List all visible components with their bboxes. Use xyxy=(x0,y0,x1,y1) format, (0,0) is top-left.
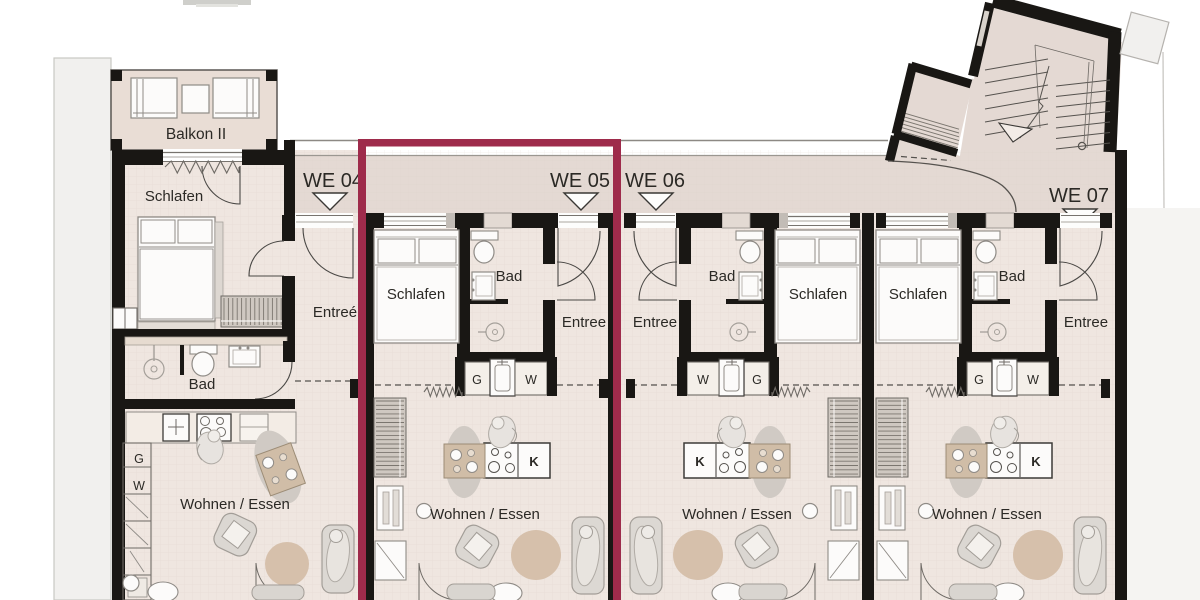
svg-text:K: K xyxy=(1031,454,1041,469)
svg-text:Wohnen / Essen: Wohnen / Essen xyxy=(430,506,540,523)
svg-text:Entree: Entree xyxy=(633,314,677,331)
svg-text:Schlafen: Schlafen xyxy=(145,188,203,205)
svg-text:W: W xyxy=(697,373,709,387)
svg-text:Entree: Entree xyxy=(562,314,606,331)
svg-text:Wohnen / Essen: Wohnen / Essen xyxy=(682,506,792,523)
svg-text:K: K xyxy=(695,454,705,469)
svg-text:W: W xyxy=(133,479,145,493)
svg-text:Entreé: Entreé xyxy=(313,304,357,321)
svg-text:WE 04: WE 04 xyxy=(303,170,363,192)
svg-text:Schlafen: Schlafen xyxy=(789,286,847,303)
svg-text:Wohnen / Essen: Wohnen / Essen xyxy=(180,496,290,513)
svg-text:Bad: Bad xyxy=(709,268,736,285)
svg-text:G: G xyxy=(134,452,144,466)
svg-text:Balkon II: Balkon II xyxy=(166,126,226,143)
svg-text:WE 05: WE 05 xyxy=(550,170,610,192)
svg-text:W: W xyxy=(525,373,537,387)
svg-text:G: G xyxy=(472,373,482,387)
svg-text:Wohnen / Essen: Wohnen / Essen xyxy=(932,506,1042,523)
svg-text:WE 07: WE 07 xyxy=(1049,185,1109,207)
svg-text:Bad: Bad xyxy=(999,268,1026,285)
svg-text:Schlafen: Schlafen xyxy=(889,286,947,303)
svg-text:K: K xyxy=(529,454,539,469)
svg-text:Schlafen: Schlafen xyxy=(387,286,445,303)
svg-text:G: G xyxy=(752,373,762,387)
svg-text:Bad: Bad xyxy=(189,376,216,393)
svg-text:G: G xyxy=(974,373,984,387)
svg-text:Entree: Entree xyxy=(1064,314,1108,331)
svg-text:Bad: Bad xyxy=(496,268,523,285)
svg-text:WE 06: WE 06 xyxy=(625,170,685,192)
svg-text:W: W xyxy=(1027,373,1039,387)
